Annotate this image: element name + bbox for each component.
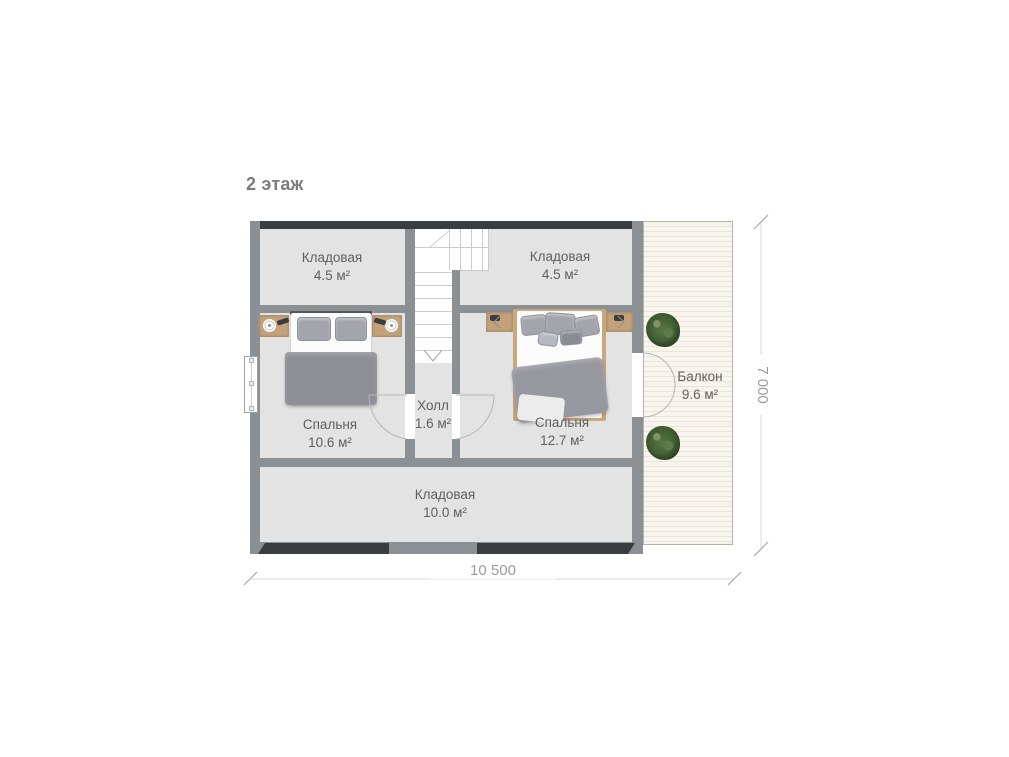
staircase-treads <box>415 272 452 351</box>
room-name: Спальня <box>303 416 357 434</box>
bed-blanket <box>285 352 377 405</box>
dimension-tick <box>754 215 768 229</box>
window-frame-mark <box>249 358 254 363</box>
room-area: 10.0 м² <box>415 504 475 522</box>
pillow <box>335 317 367 341</box>
door-opening-hall-right <box>452 394 460 439</box>
wall-exterior-bottom-dark-right <box>477 543 635 554</box>
staircase-winder-treads <box>449 229 489 270</box>
wall-exterior-top <box>250 221 643 229</box>
nightstand-item <box>490 315 500 321</box>
window-frame-mark <box>249 406 254 411</box>
floor-plan-page: 2 этаж <box>0 0 1009 757</box>
room-area: 10.6 м² <box>303 434 357 452</box>
floor-title: 2 этаж <box>246 174 304 195</box>
dimension-tick <box>728 572 741 585</box>
pillow <box>297 317 331 341</box>
room-label-bedroom-left: Спальня 10.6 м² <box>303 416 357 452</box>
staircase-step-edge <box>415 247 489 248</box>
table-lamp-icon <box>385 319 398 332</box>
dimension-tick <box>244 572 257 585</box>
wall-stair-left-lower <box>405 439 415 458</box>
pillow <box>537 331 559 348</box>
dimension-width-label: 10 500 <box>430 562 556 579</box>
room-area: 12.7 м² <box>535 432 589 450</box>
room-area: 9.6 м² <box>677 386 722 404</box>
wall-stair-left-upper <box>405 229 415 394</box>
wall-stair-right-upper <box>452 270 460 394</box>
plant-icon <box>646 426 680 460</box>
door-opening-balcony <box>632 353 643 417</box>
table-lamp-icon <box>263 319 276 332</box>
pillow <box>559 329 582 346</box>
room-name: Кладовая <box>302 249 362 267</box>
room-name: Кладовая <box>415 486 475 504</box>
wall-interior-bottom <box>260 458 632 467</box>
room-name: Спальня <box>535 414 589 432</box>
wall-exterior-bottom-dark-left <box>258 543 389 554</box>
room-label-balcony: Балкон 9.6 м² <box>677 368 722 404</box>
room-label-storage-top-right: Кладовая 4.5 м² <box>530 248 590 284</box>
window-left-wall <box>244 356 258 413</box>
wall-exterior-right-lower <box>632 417 643 554</box>
dimension-height-label: 7 000 <box>751 355 771 415</box>
wall-exterior-right-upper <box>632 221 643 353</box>
room-area: 4.5 м² <box>302 267 362 285</box>
room-name: Кладовая <box>530 248 590 266</box>
room-label-bedroom-right: Спальня 12.7 м² <box>535 414 589 450</box>
dimension-tick <box>754 542 768 556</box>
room-label-hall: Холл 1.6 м² <box>415 397 451 433</box>
room-label-storage-bottom: Кладовая 10.0 м² <box>415 486 475 522</box>
room-label-storage-top-left: Кладовая 4.5 м² <box>302 249 362 285</box>
window-frame-mark <box>249 381 254 386</box>
room-name: Холл <box>415 397 451 415</box>
nightstand-item <box>614 315 624 321</box>
room-area: 1.6 м² <box>415 415 451 433</box>
staircase-landing-edge-right <box>488 229 489 271</box>
room-area: 4.5 м² <box>530 266 590 284</box>
door-opening-hall-left <box>405 394 415 439</box>
wall-stair-right-lower <box>452 439 460 458</box>
room-name: Балкон <box>677 368 722 386</box>
plant-icon <box>646 313 680 347</box>
